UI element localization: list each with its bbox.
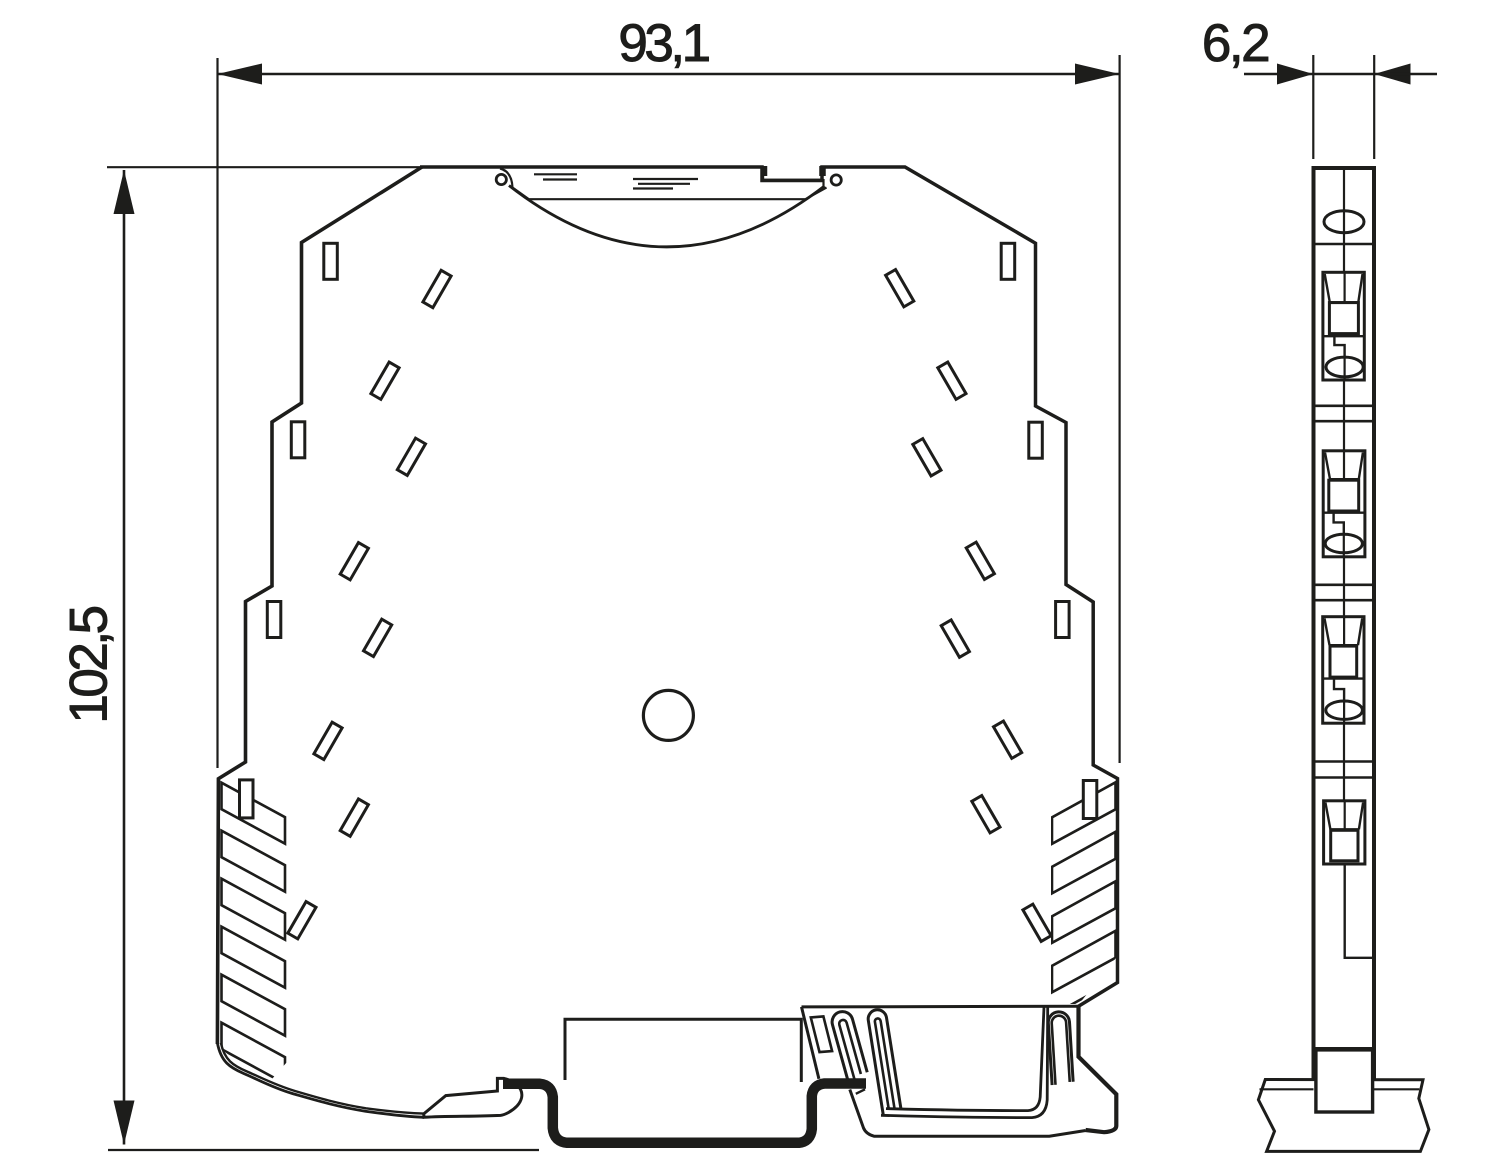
svg-text:93,1: 93,1 [618,14,708,73]
svg-text:102,5: 102,5 [60,606,119,723]
svg-text:6,2: 6,2 [1202,14,1268,73]
